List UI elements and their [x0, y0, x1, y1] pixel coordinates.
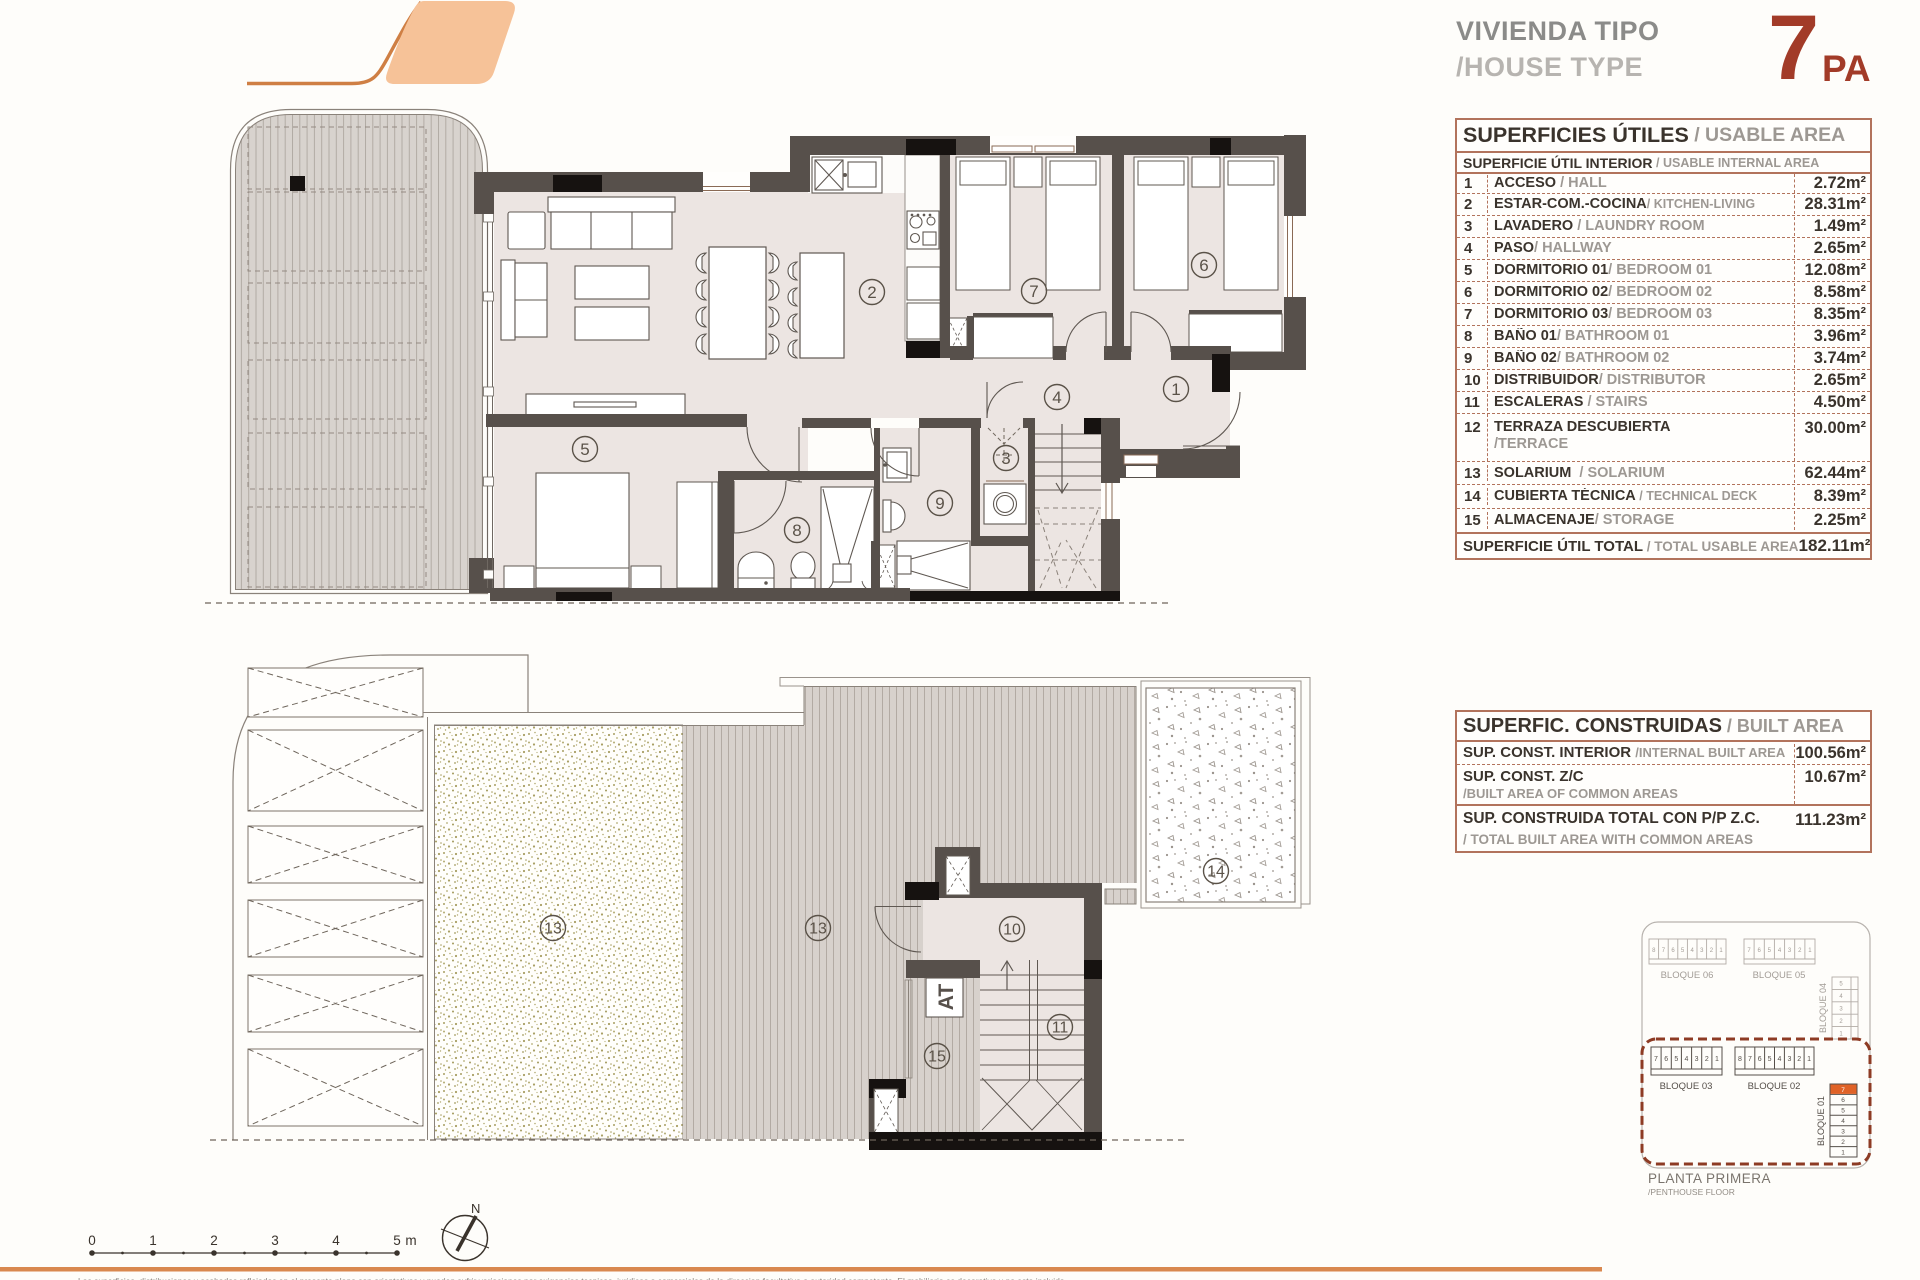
svg-text:2: 2 [1705, 1056, 1709, 1063]
svg-text:/PENTHOUSE FLOOR: /PENTHOUSE FLOOR [1648, 1187, 1735, 1197]
svg-text:5: 5 [1841, 1108, 1845, 1115]
svg-text:Las superficies, distribucione: Las superficies, distribuciones y acabad… [78, 1276, 1067, 1280]
svg-text:8: 8 [1738, 1056, 1742, 1063]
svg-text:6: 6 [1758, 948, 1762, 954]
svg-text:1: 1 [1719, 948, 1723, 954]
svg-text:BLOQUE 04: BLOQUE 04 [1818, 983, 1828, 1033]
svg-text:7: 7 [1748, 1056, 1752, 1063]
svg-text:2: 2 [1710, 948, 1714, 954]
svg-text:5: 5 [580, 440, 589, 459]
svg-text:7: 7 [1841, 1087, 1845, 1094]
svg-text:4: 4 [1841, 1118, 1845, 1125]
svg-text:2: 2 [1841, 1139, 1845, 1146]
svg-text:1: 1 [1171, 380, 1180, 399]
svg-text:4: 4 [1691, 948, 1695, 954]
svg-text:3: 3 [1001, 449, 1010, 468]
svg-text:11: 11 [1052, 1020, 1069, 1037]
svg-text:14: 14 [1207, 864, 1225, 881]
svg-text:7: 7 [1747, 948, 1751, 954]
svg-text:3: 3 [1788, 948, 1792, 954]
svg-text:0: 0 [88, 1233, 96, 1248]
svg-text:7: 7 [1662, 948, 1666, 954]
svg-text:3: 3 [1841, 1128, 1845, 1135]
svg-text:1: 1 [1807, 1056, 1811, 1063]
svg-text:2: 2 [867, 283, 876, 302]
svg-text:5: 5 [1768, 1056, 1772, 1063]
svg-text:8: 8 [792, 521, 801, 540]
svg-text:6: 6 [1199, 256, 1208, 275]
svg-text:6: 6 [1758, 1056, 1762, 1063]
svg-text:4: 4 [1778, 948, 1782, 954]
svg-text:PLANTA PRIMERA: PLANTA PRIMERA [1648, 1171, 1771, 1186]
svg-text:1: 1 [1841, 1149, 1845, 1156]
svg-text:10: 10 [1003, 922, 1021, 939]
svg-text:4: 4 [1685, 1056, 1689, 1063]
svg-text:7: 7 [1029, 282, 1038, 301]
svg-text:7: 7 [1654, 1056, 1658, 1063]
svg-text:1: 1 [1839, 1031, 1843, 1037]
svg-text:BLOQUE 01: BLOQUE 01 [1816, 1096, 1826, 1146]
svg-text:6: 6 [1841, 1097, 1845, 1104]
svg-text:2: 2 [1839, 1019, 1843, 1025]
svg-text:AT: AT [935, 984, 958, 1011]
svg-text:2: 2 [1798, 948, 1802, 954]
svg-text:8: 8 [1652, 948, 1656, 954]
svg-text:N: N [471, 1201, 480, 1216]
svg-text:1: 1 [1715, 1056, 1719, 1063]
svg-text:6: 6 [1664, 1056, 1668, 1063]
svg-text:3: 3 [271, 1233, 279, 1248]
svg-text:5: 5 [1681, 948, 1685, 954]
svg-text:BLOQUE 05: BLOQUE 05 [1753, 970, 1806, 981]
svg-text:BLOQUE 06: BLOQUE 06 [1661, 970, 1714, 981]
svg-text:4: 4 [1839, 994, 1843, 1000]
svg-text:9: 9 [935, 494, 944, 513]
svg-text:13: 13 [544, 921, 562, 938]
svg-text:5: 5 [1839, 982, 1843, 988]
svg-text:m: m [405, 1233, 416, 1248]
svg-text:1: 1 [1808, 948, 1812, 954]
svg-text:BLOQUE 03: BLOQUE 03 [1660, 1081, 1713, 1092]
svg-text:4: 4 [1052, 388, 1061, 407]
svg-text:5: 5 [1768, 948, 1772, 954]
svg-text:2: 2 [1797, 1056, 1801, 1063]
svg-text:6: 6 [1671, 948, 1675, 954]
svg-text:BLOQUE 02: BLOQUE 02 [1748, 1081, 1801, 1092]
svg-text:15: 15 [928, 1049, 946, 1066]
svg-text:5: 5 [1674, 1056, 1678, 1063]
svg-text:3: 3 [1695, 1056, 1699, 1063]
svg-text:3: 3 [1787, 1056, 1791, 1063]
svg-text:4: 4 [1778, 1056, 1782, 1063]
svg-text:5: 5 [393, 1233, 401, 1248]
svg-text:3: 3 [1839, 1007, 1843, 1013]
svg-text:1: 1 [149, 1233, 157, 1248]
svg-text:4: 4 [332, 1233, 340, 1248]
svg-text:13: 13 [809, 921, 827, 938]
svg-text:2: 2 [210, 1233, 218, 1248]
svg-text:3: 3 [1700, 948, 1704, 954]
